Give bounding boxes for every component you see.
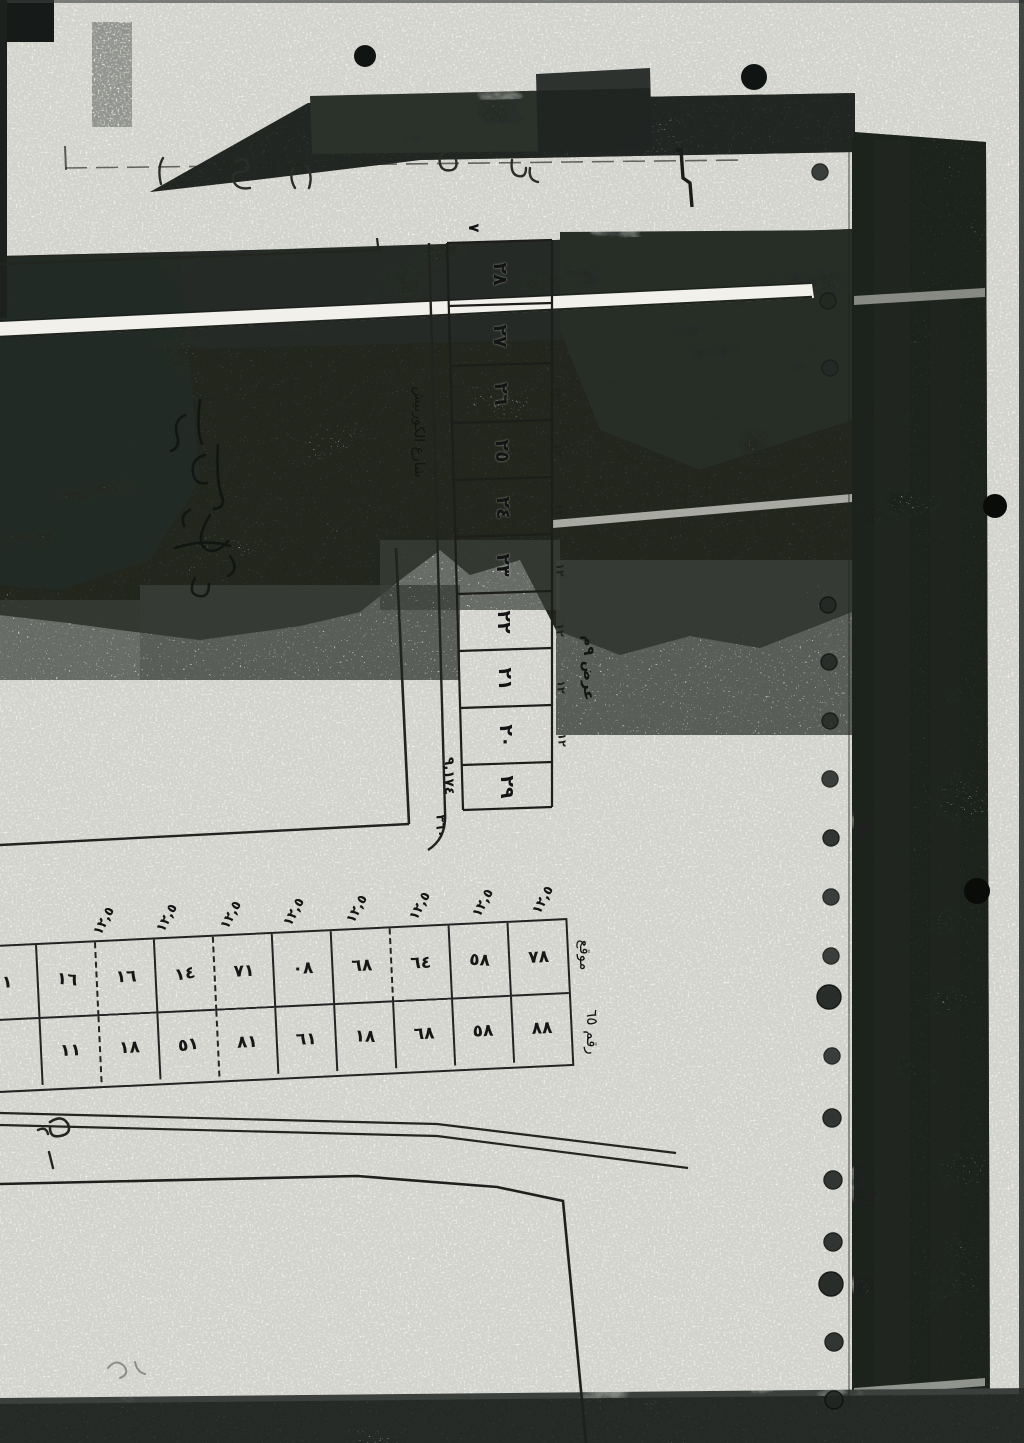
note-right-of-table: موقع	[576, 940, 594, 971]
area-note: ٩,١٧٤	[441, 757, 457, 795]
toner-region-right-band	[852, 132, 990, 1443]
table-cell: ١٦	[94, 940, 156, 1017]
table-cell: ١٨	[97, 1013, 159, 1082]
table-cell: ٥١	[156, 1011, 218, 1080]
strip-plot-number: ٢٨	[489, 262, 511, 285]
table-cell: ٦٤	[389, 926, 451, 1003]
table-cell: ١٨	[333, 1002, 395, 1071]
table-cell: ٧٨	[507, 920, 569, 997]
table-cell: ٥٨	[448, 923, 510, 1000]
strip-plot-number: ٢٦	[490, 382, 512, 405]
table-cell: ٦١	[274, 1005, 336, 1074]
strip-plot-number: ٢٢	[493, 610, 515, 633]
count-note: ٣٦٠	[434, 815, 449, 838]
strip-plot-number: ٢٣	[492, 553, 514, 576]
check-mark: ٧	[465, 223, 483, 232]
strip-plot-number: ٢١	[494, 667, 516, 690]
plots-table: ١ ١٦ ١٦ ١٤ ٧١ ٠٨ ٦٨ ٦٤ ٥٨ ٧٨ ١١ ١٨ ٥١ ٨١…	[0, 918, 574, 1094]
strip-plot-number: ٢٩	[496, 775, 518, 798]
plan-drawing-layer	[0, 0, 1024, 1443]
table-cell: ١١	[39, 1016, 101, 1085]
strip-plot-number: ٢٧	[489, 324, 511, 347]
table-cell: ١	[0, 945, 39, 1022]
dim-tick: ١٢	[551, 386, 564, 399]
table-cell: ٧١	[212, 934, 274, 1011]
table-cell: ٨١	[215, 1008, 277, 1077]
dim-tick: ١٢	[555, 680, 568, 693]
toner-streak-topleft	[92, 22, 132, 127]
table-cell: ١٤	[153, 937, 215, 1014]
table-cell: ٥٨	[451, 997, 513, 1066]
table-cell: ٦٨	[330, 928, 392, 1005]
dim-tick: ١٢	[554, 563, 567, 576]
note-right-of-table: رقم ٦٥	[583, 1009, 601, 1054]
dim-tick: ١٢	[553, 503, 566, 516]
scanned-plan-page: ٢٨ ٢٧ ٢٦ ٢٥ ٢٤ ٢٣ ٢٢ ٢١ ٢٠ ٢٩ ١٢ ١٢ ١٢ ١…	[0, 0, 1024, 1443]
table-cell: ٠٨	[271, 931, 333, 1008]
strip-plot-number: ٢٠	[495, 724, 517, 747]
dim-tick: ١٢	[554, 623, 567, 636]
table-cell	[0, 1019, 42, 1088]
table-cell: ٨٨	[510, 994, 572, 1063]
strip-plot-number: ٢٥	[491, 439, 513, 462]
dim-tick: ١٢	[552, 443, 565, 456]
strip-plot-number: ٢٤	[492, 496, 514, 519]
street-width-note: عرض ٩م	[580, 635, 598, 700]
table-cell: ٦٨	[392, 1000, 454, 1069]
table-cell: ١٦	[35, 942, 97, 1019]
street-label: شارع الكورنيش	[411, 386, 427, 477]
dim-tick: ١٢	[556, 733, 569, 746]
